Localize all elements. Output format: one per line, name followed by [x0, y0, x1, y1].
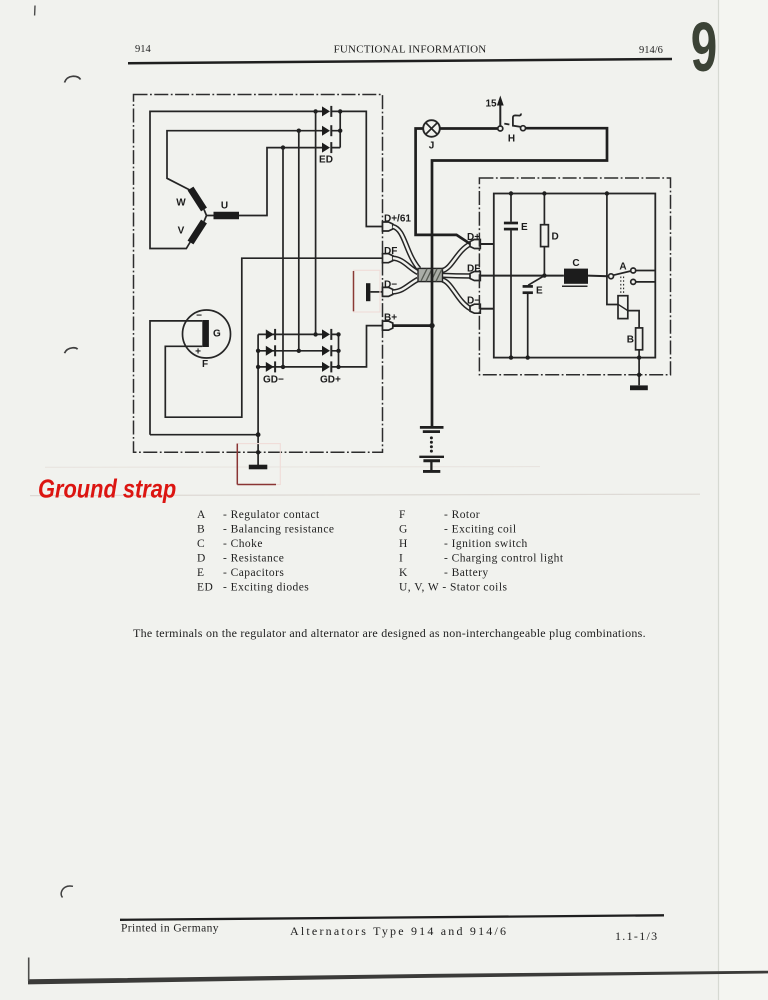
svg-text:GD−: GD− [263, 375, 284, 386]
svg-text:+: + [195, 347, 201, 358]
svg-text:C: C [572, 258, 579, 269]
svg-text:- Charging control light: - Charging control light [444, 553, 564, 565]
svg-text:- Resistance: - Resistance [223, 553, 284, 565]
svg-text:ED: ED [197, 582, 213, 594]
svg-text:- Regulator contact: - Regulator contact [223, 509, 320, 521]
svg-text:−: − [196, 311, 202, 322]
svg-text:- Exciting diodes: - Exciting diodes [223, 582, 309, 594]
svg-text:ED: ED [319, 155, 333, 166]
svg-text:Ground strap: Ground strap [38, 475, 176, 504]
svg-text:J: J [429, 141, 435, 152]
svg-text:Alternators Type 914 and 914/6: Alternators Type 914 and 914/6 [290, 924, 508, 938]
svg-text:- Ignition switch: - Ignition switch [444, 538, 528, 550]
svg-text:F: F [399, 509, 406, 521]
svg-text:914: 914 [135, 44, 152, 55]
svg-text:DF: DF [467, 264, 480, 275]
svg-text:I: I [399, 553, 403, 565]
svg-text:K: K [399, 567, 408, 579]
svg-text:- Exciting coil: - Exciting coil [444, 524, 517, 536]
svg-text:B+: B+ [384, 313, 397, 324]
svg-text:B: B [197, 524, 205, 536]
svg-text:H: H [508, 134, 515, 145]
svg-text:- Balancing resistance: - Balancing resistance [223, 524, 334, 536]
svg-text:DF: DF [384, 246, 397, 257]
svg-text:FUNCTIONAL INFORMATION: FUNCTIONAL INFORMATION [334, 44, 487, 56]
svg-text:U: U [221, 201, 228, 212]
svg-text:GD+: GD+ [320, 375, 341, 386]
svg-text:H: H [399, 538, 408, 550]
svg-text:Printed in Germany: Printed in Germany [121, 923, 219, 935]
svg-text:D: D [552, 232, 559, 243]
svg-text:D−: D− [467, 296, 480, 307]
svg-text:E: E [197, 567, 204, 579]
svg-text:15: 15 [485, 99, 497, 110]
svg-text:D: D [197, 553, 206, 565]
svg-text:- Capacitors: - Capacitors [223, 567, 284, 579]
svg-text:A: A [619, 262, 626, 273]
svg-text:914/6: 914/6 [639, 45, 663, 56]
svg-text:9: 9 [691, 8, 717, 86]
svg-text:G: G [399, 524, 408, 536]
svg-text:C: C [197, 538, 205, 550]
svg-text:- Choke: - Choke [223, 538, 263, 550]
svg-text:1.1-1/3: 1.1-1/3 [615, 929, 658, 943]
svg-text:D+/61: D+/61 [384, 214, 411, 225]
svg-text:- Battery: - Battery [444, 567, 489, 579]
svg-text:V: V [178, 226, 185, 237]
svg-text:D+: D+ [467, 232, 480, 243]
svg-text:F: F [202, 359, 208, 370]
svg-text:E: E [536, 286, 543, 297]
svg-text:G: G [213, 329, 221, 340]
svg-text:The terminals on the regulator: The terminals on the regulator and alter… [133, 626, 646, 640]
svg-text:A: A [197, 509, 206, 521]
svg-text:W: W [176, 198, 186, 209]
svg-text:U, V, W - Stator coils: U, V, W - Stator coils [399, 582, 507, 594]
svg-text:E: E [521, 222, 528, 233]
svg-text:B: B [627, 335, 634, 346]
svg-text:- Rotor: - Rotor [444, 509, 480, 521]
